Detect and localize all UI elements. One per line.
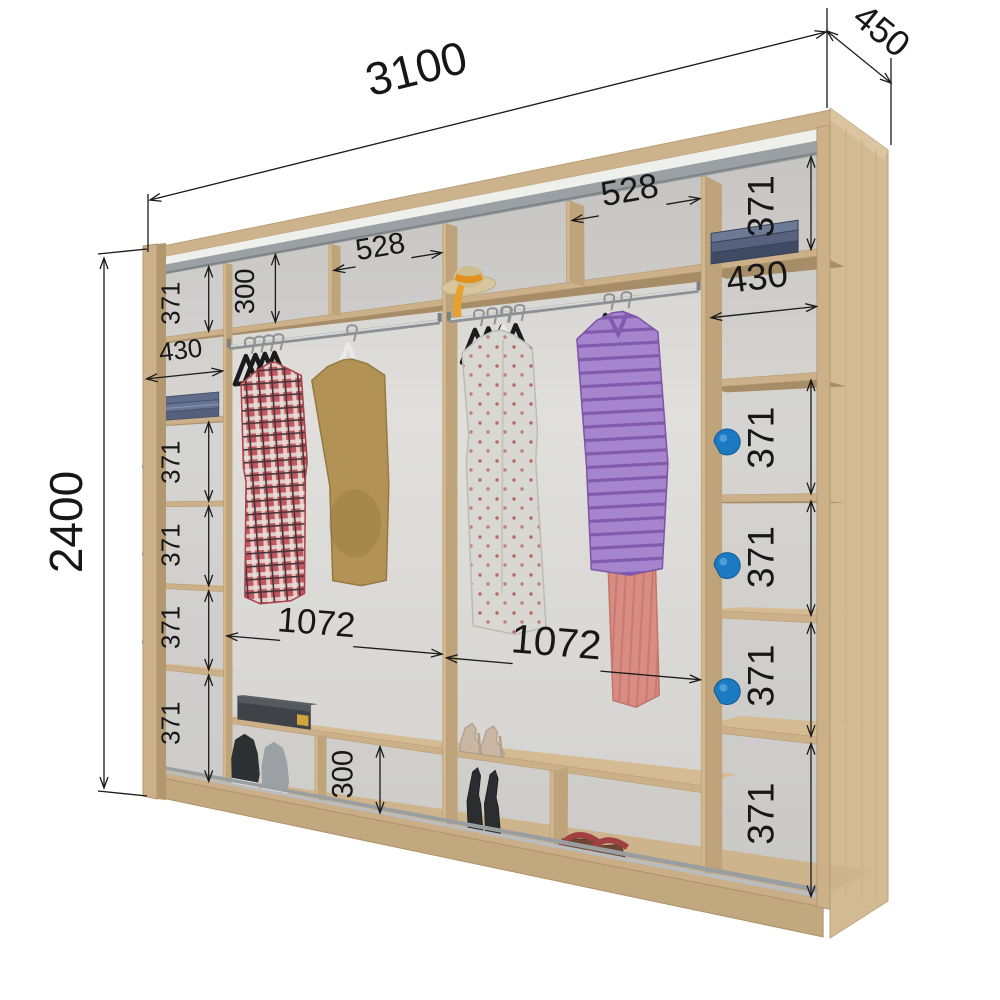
divider-shoe-center-left	[315, 736, 318, 803]
dim-label-right-371: 371	[740, 526, 782, 588]
dim-label-3100: 3100	[360, 31, 472, 106]
shoe-box-label	[297, 714, 308, 726]
clothes-rail-right-bracket	[447, 312, 451, 321]
wardrobe-diagram: 3714303713713713713714303713713713713005…	[0, 0, 1000, 1000]
wardrobe-diagram-stage: 3714303713713713713714303713713713713005…	[0, 0, 1000, 1000]
left-stile	[143, 244, 157, 799]
dim-label-left-371: 371	[157, 606, 185, 649]
dim-label-right-430: 430	[724, 253, 790, 301]
side-panel	[830, 108, 888, 938]
divider-shoe-center-right-side	[554, 767, 568, 847]
door-handle-right-highlight	[719, 684, 727, 692]
dim-label-right-371: 371	[740, 644, 782, 706]
divider-top-center-right-side	[570, 201, 584, 287]
dim-label-left-371: 371	[157, 441, 185, 484]
right-stile	[817, 125, 830, 909]
purple-sweater	[577, 312, 668, 576]
dim-label-2400: 2400	[40, 471, 92, 573]
divider-shoe-center-left-side	[318, 735, 326, 803]
divider-top-center-right	[566, 201, 570, 283]
dim-label-right-371: 371	[740, 407, 782, 469]
ext-line-2400-top	[98, 249, 147, 254]
sweater-print	[329, 489, 381, 557]
clothes-rail-right-bracket	[697, 281, 701, 290]
clothes-rail-left-bracket	[438, 313, 442, 322]
divider-center	[443, 223, 447, 827]
ext-line-2400-bottom	[98, 791, 147, 796]
dim-label-right-371: 371	[740, 782, 782, 844]
door-handle-right-highlight	[719, 558, 727, 566]
dim-label-1072-right: 1072	[509, 615, 603, 668]
divider-left	[224, 263, 227, 785]
dim-label-right-371: 371	[740, 175, 782, 237]
plaid-shirt	[241, 362, 307, 604]
dim-label-left-371: 371	[157, 282, 185, 325]
divider-top-center-left	[329, 244, 332, 315]
dim-label-300-bottom: 300	[328, 750, 360, 799]
divider-right	[701, 176, 705, 876]
dim-label-1072-left: 1072	[276, 600, 357, 645]
floral-dress	[462, 330, 546, 634]
door-handle-right-highlight	[719, 434, 727, 442]
sneaker-black	[233, 736, 259, 783]
dim-label-left-371: 371	[157, 523, 185, 566]
divider-top-center-left-side	[332, 244, 341, 316]
dim-label-left-430: 430	[157, 333, 204, 368]
clothes-rail-left-bracket	[227, 339, 231, 348]
divider-shoe-center-right	[550, 770, 554, 847]
right-column-shelf	[705, 494, 821, 502]
divider-right-side	[705, 176, 722, 876]
dim-label-left-371: 371	[157, 702, 185, 745]
dim-label-300-top: 300	[229, 269, 260, 315]
